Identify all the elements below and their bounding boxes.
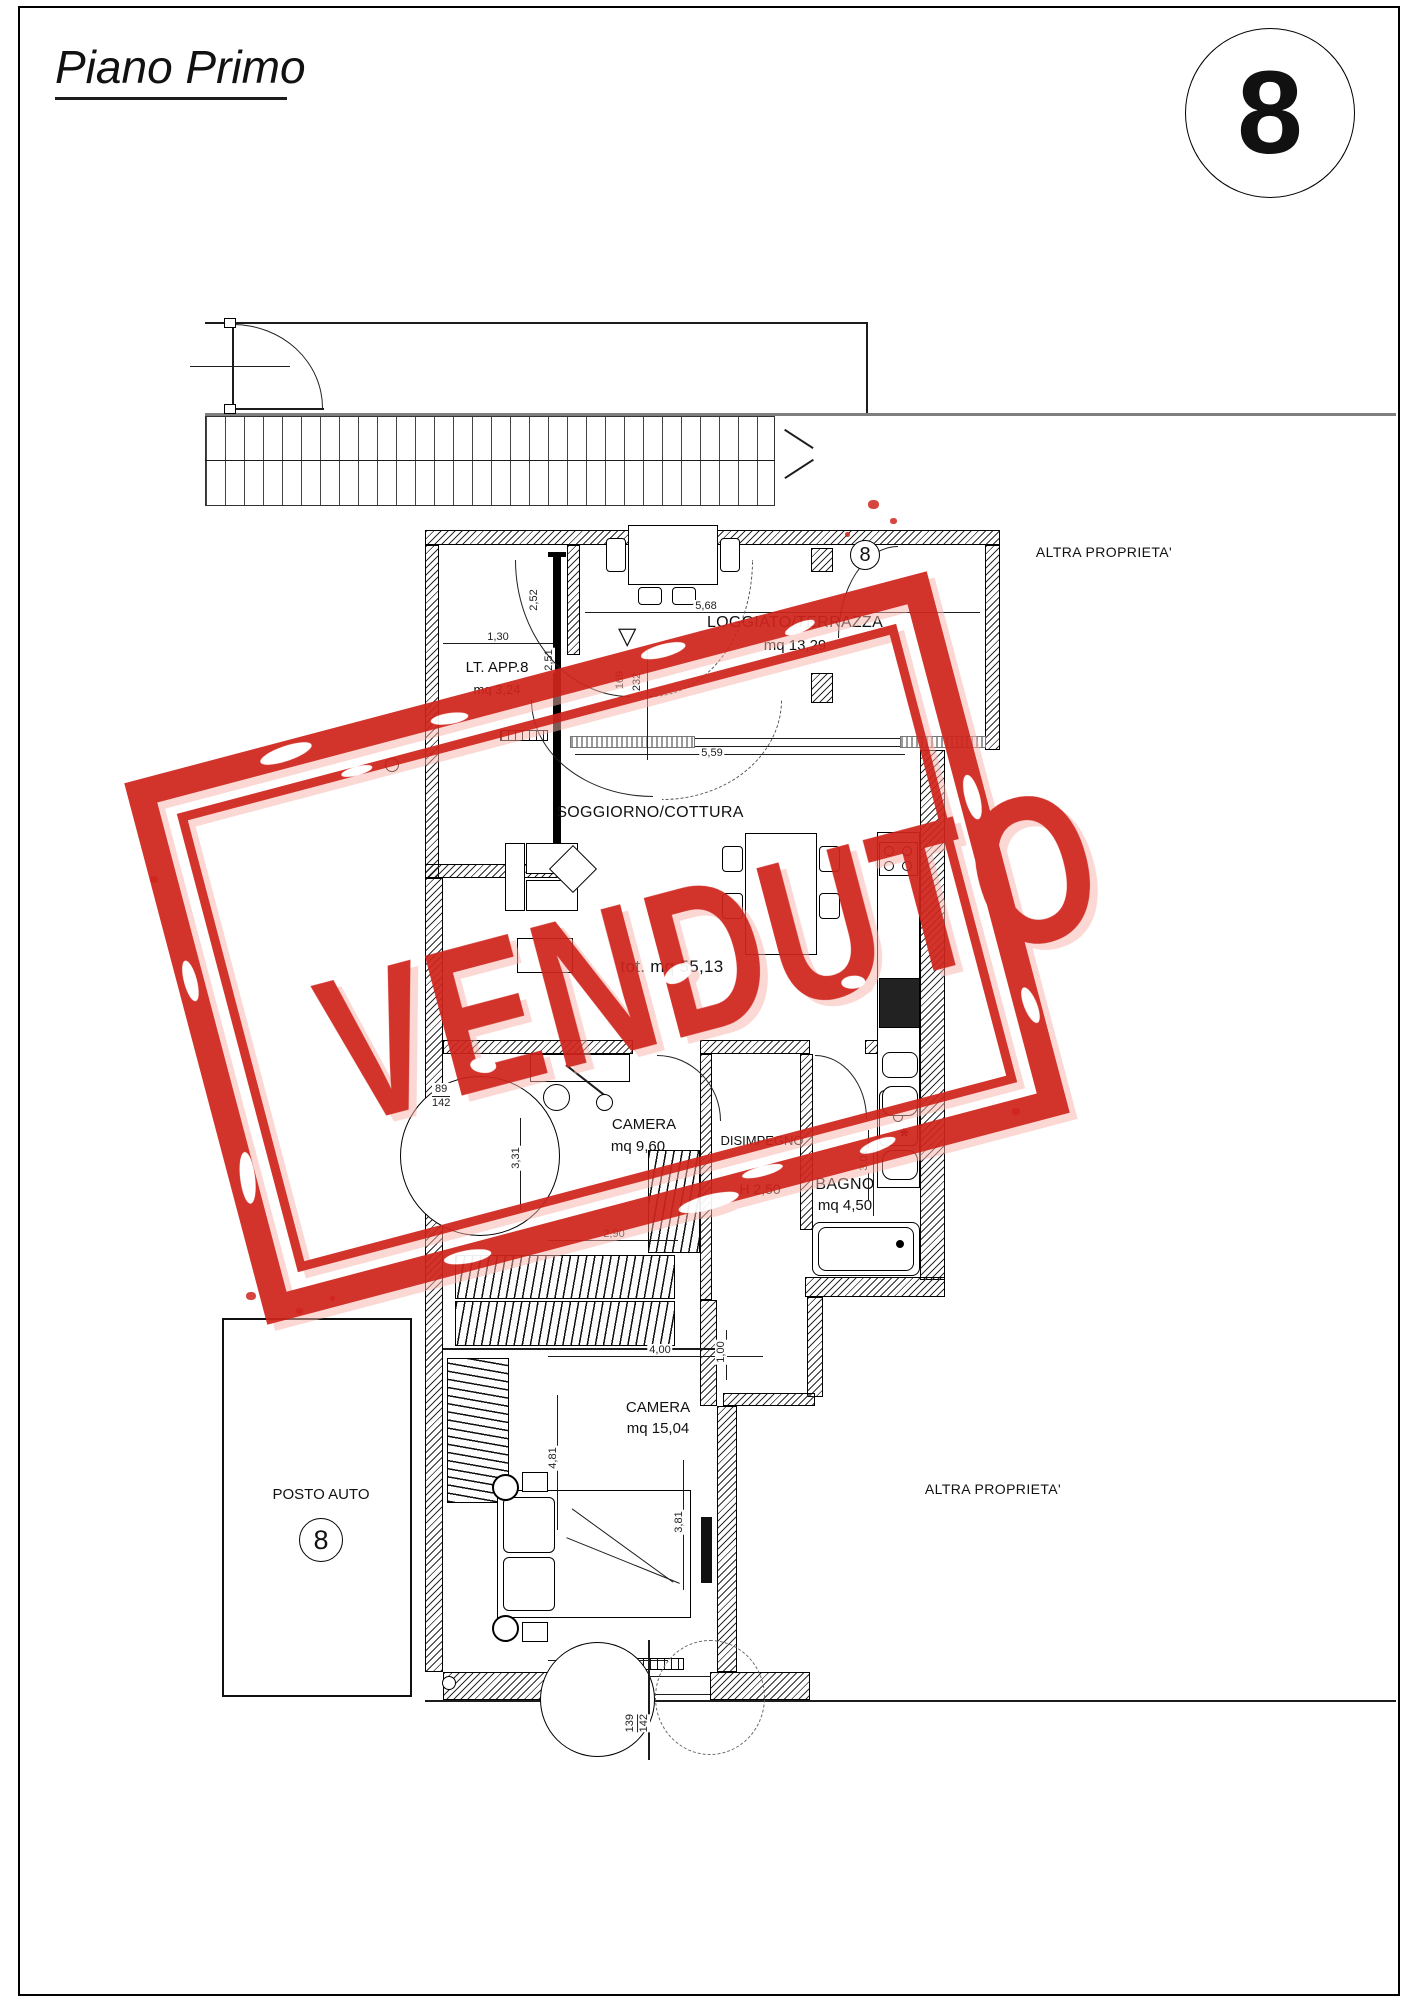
step-wall-horizontal [723,1393,815,1406]
terrace-right-wall [985,545,1000,750]
corridor-right-line [866,322,868,414]
bagno-bottom-wall [805,1277,945,1297]
dim-381: 3,81 [673,1509,685,1534]
nightstand-lamp-top [492,1474,519,1501]
camera2-area: mq 15,04 [627,1421,690,1438]
bathtub-drain [896,1240,904,1248]
step-wall-vertical [807,1297,823,1397]
ltapp-label: LT. APP.8 [466,660,529,677]
insulated-wall-cap-top [548,552,566,557]
entrance-swing-solid [540,1642,655,1757]
dim-line-400 [548,1356,763,1357]
parking-stall [222,1318,412,1697]
wall-tv [701,1517,712,1583]
dim-139-142: 139 142 [624,1714,650,1732]
pillow1 [503,1497,555,1553]
dim-100: 1,00 [715,1339,727,1364]
door-hinge-bottom [224,404,236,414]
nightstand-bottom [522,1622,548,1642]
entrance-center-jamb [648,1640,650,1760]
entrance-swing-dashed [655,1640,765,1755]
page-title: Piano Primo [55,40,306,94]
dim-400: 4,00 [647,1344,672,1356]
wardrobe-row2 [455,1301,675,1346]
dim-130: 1,30 [485,631,510,643]
stair-mid-line [205,460,775,461]
pillow2 [503,1557,555,1611]
terrace-pillar-a [811,548,833,572]
altra-proprieta-top: ALTRA PROPRIETA' [1036,545,1172,560]
dim-139: 139 [624,1714,637,1732]
corridor-top-line [205,322,868,324]
dim-481: 4,81 [547,1445,559,1470]
nightstand-top [522,1472,548,1492]
parking-badge-number: 8 [313,1525,328,1556]
line-camera1-camera2 [443,1348,717,1350]
bagno-area: mq 4,50 [818,1198,872,1215]
parking-label: POSTO AUTO [273,1487,370,1504]
title-underline [55,97,287,100]
bagno-label: BAGNO [815,1176,874,1194]
bathtub-inner [818,1227,914,1271]
landing-tick [190,366,290,367]
door-hinge-top [224,318,236,328]
dim-142b: 142 [637,1714,651,1732]
floor-plan-sheet: Piano Primo 8 8 LT. APP.8 mq 3,24 LOGGIA… [0,0,1414,2000]
staircase [205,416,775,506]
marker-circle-bottom [442,1676,456,1690]
unit-badge-number: 8 [1237,45,1303,181]
landing-door-leaf [232,408,324,410]
camera2-label: CAMERA [626,1400,690,1417]
terrace-badge-number: 8 [859,544,870,567]
altra-proprieta-bottom: ALTRA PROPRIETA' [925,1482,1061,1497]
dim-line-130 [443,643,553,644]
nightstand-lamp-bottom [492,1615,519,1642]
camera2-right-wall [717,1406,737,1672]
